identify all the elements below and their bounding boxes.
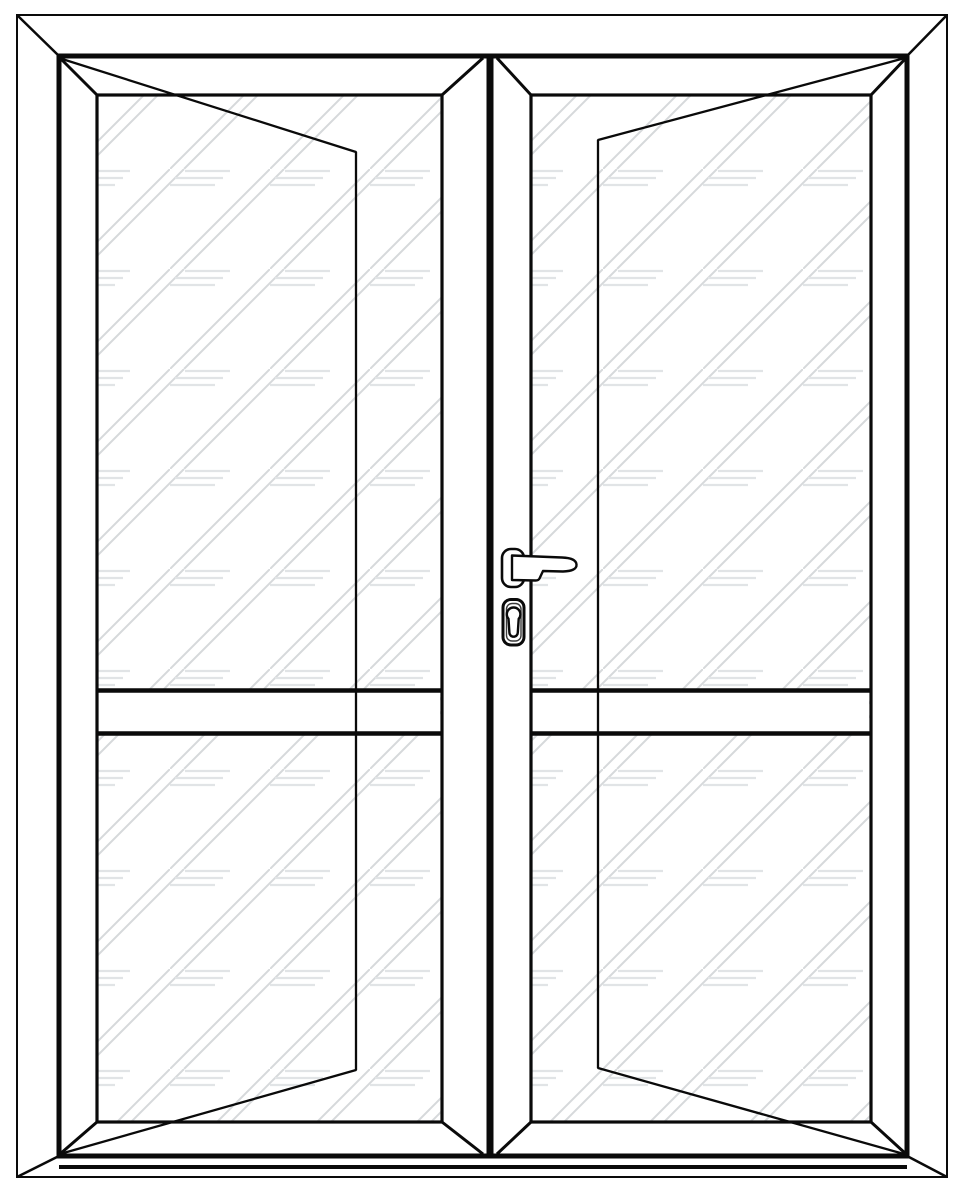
- midrail: [533, 689, 869, 735]
- door-elevation-drawing: [0, 0, 964, 1184]
- door-drawing-svg: [0, 0, 964, 1184]
- glass-pane: [531, 95, 871, 1122]
- euro-cylinder-keyhole: [507, 608, 521, 637]
- midrail: [99, 689, 440, 735]
- right-door-leaf: [497, 58, 906, 1154]
- drawing-canvas: [0, 0, 964, 1184]
- glass-pane: [97, 95, 442, 1122]
- left-door-leaf: [59, 58, 483, 1154]
